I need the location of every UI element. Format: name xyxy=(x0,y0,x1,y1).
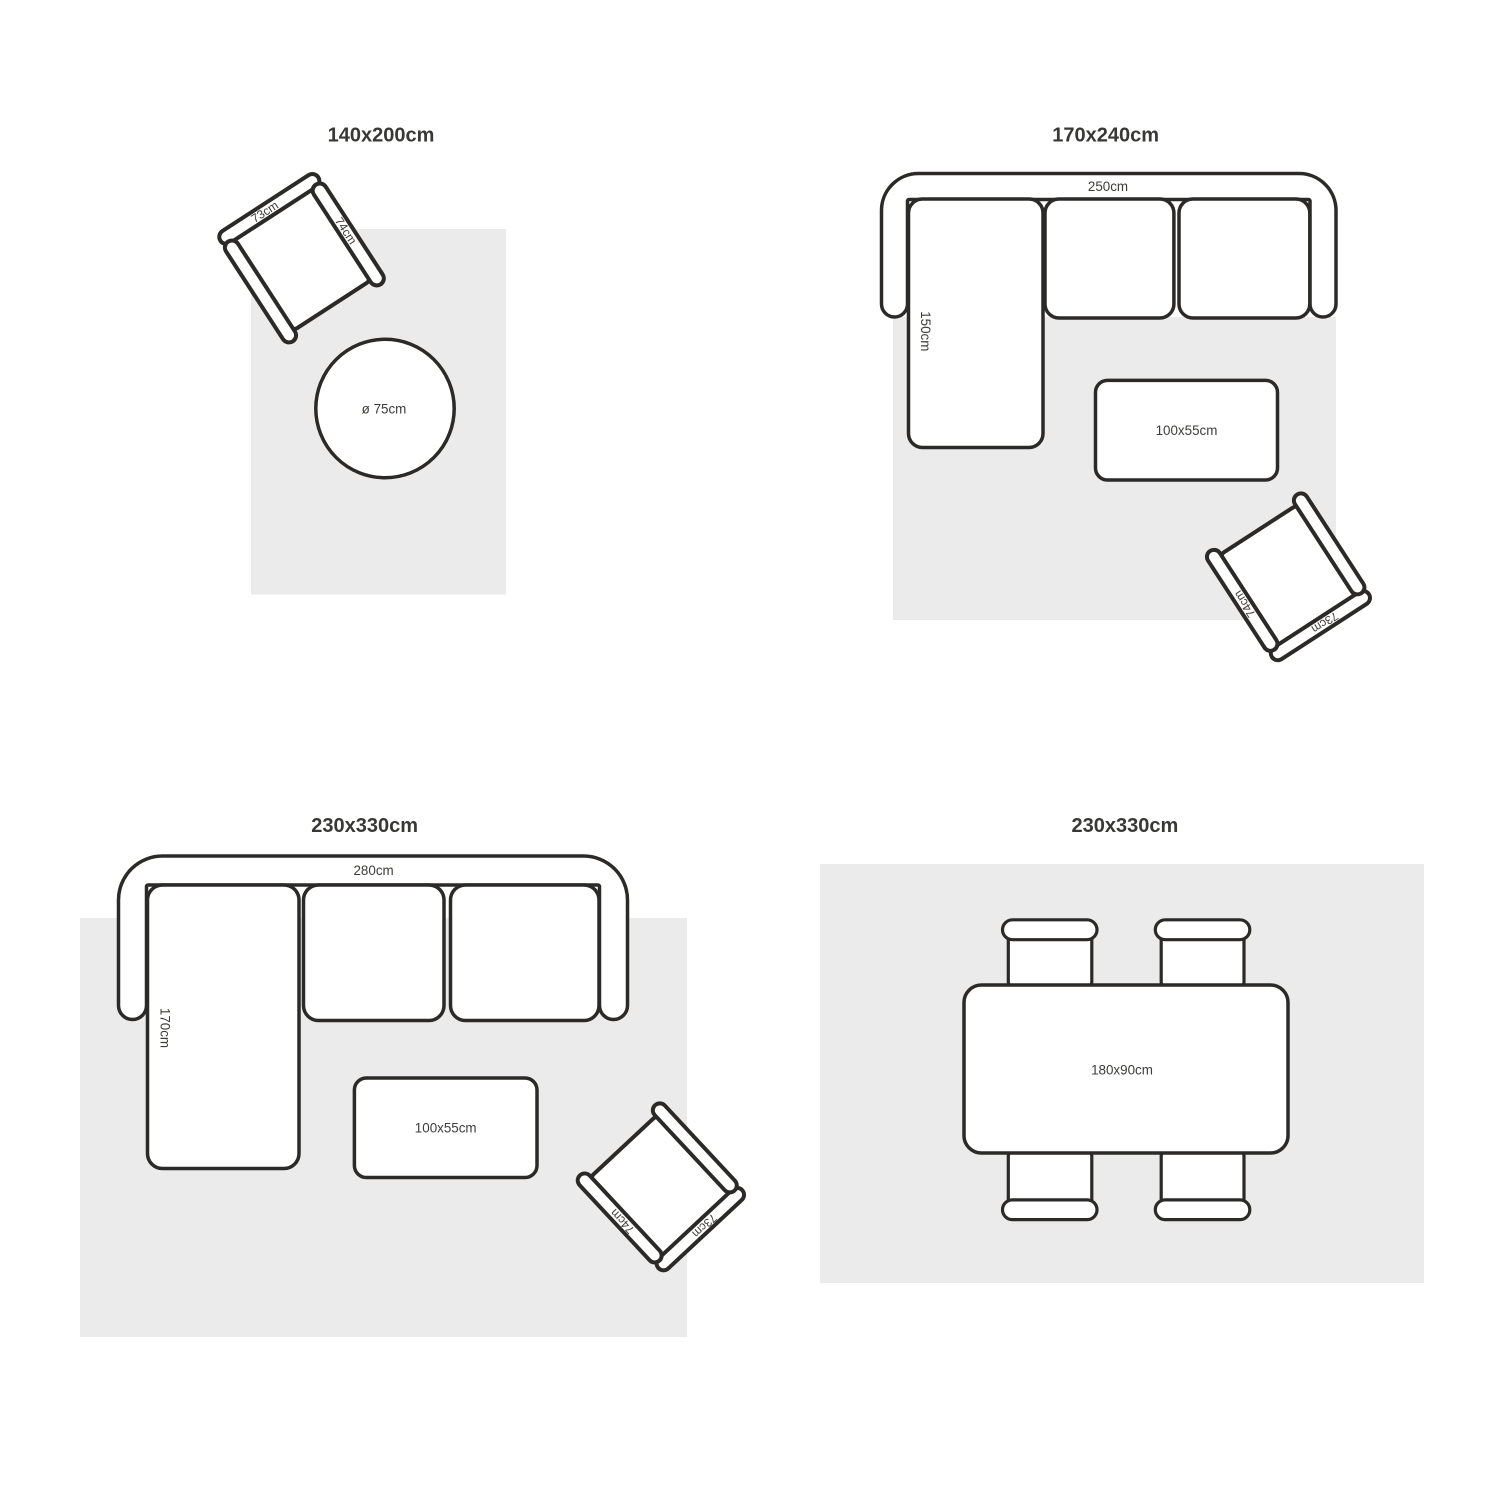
svg-text:230x330cm: 230x330cm xyxy=(1072,815,1179,837)
svg-text:100x55cm: 100x55cm xyxy=(415,1120,477,1135)
svg-text:170cm: 170cm xyxy=(158,1008,173,1048)
svg-text:280cm: 280cm xyxy=(353,863,393,878)
svg-text:180x90cm: 180x90cm xyxy=(1091,1063,1153,1078)
svg-text:170x240cm: 170x240cm xyxy=(1052,125,1159,147)
svg-text:150cm: 150cm xyxy=(918,311,933,351)
svg-text:100x55cm: 100x55cm xyxy=(1156,423,1218,438)
svg-text:230x330cm: 230x330cm xyxy=(311,815,418,837)
svg-text:ø 75cm: ø 75cm xyxy=(362,402,407,417)
svg-text:250cm: 250cm xyxy=(1088,179,1128,194)
svg-text:140x200cm: 140x200cm xyxy=(328,125,435,147)
